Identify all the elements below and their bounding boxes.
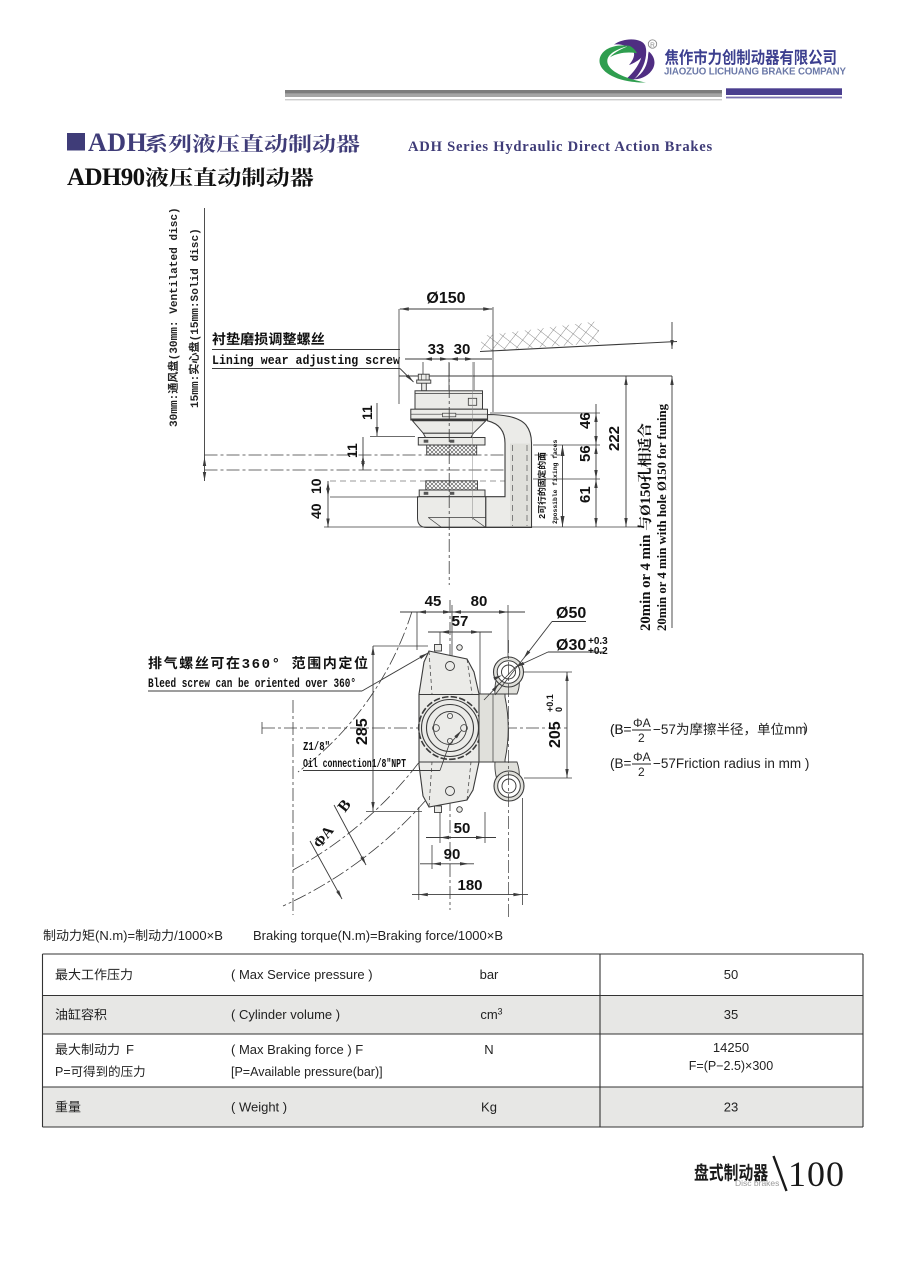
svg-text:100: 100 [788,1154,845,1194]
svg-text:56: 56 [577,445,594,462]
svg-text:222: 222 [606,426,623,451]
svg-text:(15mm:Solid disc): (15mm:Solid disc) [190,228,202,341]
svg-text:(N.m)=: (N.m)= [95,928,135,943]
svg-text:40: 40 [308,503,324,519]
svg-text:Ø50: Ø50 [556,605,586,622]
svg-text:(30mm: Ventilated disc): (30mm: Ventilated disc) [169,207,181,360]
svg-text:( Max Braking force ) F: ( Max Braking force ) F [231,1042,363,1057]
svg-text:2possible fixing faces: 2possible fixing faces [552,439,559,524]
svg-text:Lining wear adjusting screw: Lining wear adjusting screw [212,354,400,368]
svg-text:ADH90: ADH90 [67,164,145,191]
svg-text:mm: mm [784,722,807,737]
svg-text:F: F [126,1042,134,1057]
svg-text:(B=: (B= [610,722,632,737]
svg-text:−57: −57 [653,722,676,737]
svg-text:61: 61 [577,486,594,503]
svg-text:F=(P−2.5)×300: F=(P−2.5)×300 [689,1059,773,1073]
svg-text:ADH: ADH [88,128,147,157]
svg-text:Z1/8″: Z1/8″ [303,740,330,754]
svg-text:50: 50 [454,820,471,837]
svg-text:bar: bar [480,967,499,982]
svg-text:57: 57 [452,613,469,630]
svg-text:−57Friction radius in mm ): −57Friction radius in mm ) [653,756,809,771]
svg-text:180: 180 [457,877,482,894]
svg-text:P=: P= [55,1065,71,1079]
svg-text:JIAOZUO LICHUANG BRAKE COMPANY: JIAOZUO LICHUANG BRAKE COMPANY [664,67,847,78]
svg-text:( Max Service pressure ): ( Max Service pressure ) [231,967,373,982]
svg-text:46: 46 [577,412,594,429]
svg-text:80: 80 [471,593,488,610]
svg-text:30: 30 [454,341,471,358]
svg-text:ΦA: ΦA [633,716,651,730]
svg-text:2: 2 [538,514,548,519]
svg-text:90: 90 [444,846,461,863]
svg-text:(B=: (B= [610,756,632,771]
svg-text:35: 35 [724,1007,738,1022]
svg-text:Ø30: Ø30 [556,637,586,654]
svg-text:45: 45 [425,593,442,610]
svg-text:205: 205 [547,721,564,748]
svg-text:33: 33 [428,341,445,358]
svg-text:Ø150: Ø150 [426,290,465,307]
svg-text:10: 10 [308,478,324,494]
svg-text:2: 2 [638,731,645,745]
svg-text:23: 23 [724,1100,738,1115]
svg-text:Ø150: Ø150 [638,482,654,516]
svg-text:ΦA: ΦA [311,823,338,851]
svg-text:ADH Series Hydraulic Direct Ac: ADH Series Hydraulic Direct Action Brake… [408,139,713,155]
svg-text:[P=Available pressure(bar)]: [P=Available pressure(bar)] [231,1065,383,1079]
svg-text:Kg: Kg [481,1100,497,1115]
svg-text:30mm:: 30mm: [169,394,181,427]
svg-text:+0.2: +0.2 [588,646,608,657]
svg-text:R: R [650,42,655,49]
svg-text:ΦA: ΦA [633,750,651,764]
svg-text:14250: 14250 [713,1040,749,1055]
svg-text:15mm:: 15mm: [190,375,202,408]
svg-text:11: 11 [359,405,375,420]
svg-text:Bleed screw can be oriented ov: Bleed screw can be oriented over 360° [148,677,356,691]
svg-text:285: 285 [354,718,371,745]
svg-text:360°: 360° [242,657,282,673]
svg-text:11: 11 [344,443,360,458]
svg-text:( Cylinder volume ): ( Cylinder volume ) [231,1007,340,1022]
svg-text:( Weight ): ( Weight ) [231,1100,287,1115]
svg-text:/1000×B: /1000×B [174,928,223,943]
svg-text:50: 50 [724,967,738,982]
svg-text:3: 3 [498,1007,503,1017]
svg-text:N: N [484,1042,493,1057]
svg-text:20min or 4 min: 20min or 4 min [638,535,654,631]
svg-text:Disc brakes: Disc brakes [735,1178,779,1188]
svg-text:0: 0 [554,707,564,712]
svg-text:Oil connection1/8″NPT: Oil connection1/8″NPT [303,757,406,771]
svg-text:2: 2 [638,765,645,779]
svg-text:20min or 4 min with hole Ø150: 20min or 4 min with hole Ø150 for funing [655,403,669,631]
svg-text:Braking torque(N.m)=Braking fo: Braking torque(N.m)=Braking force/1000×B [253,928,503,943]
svg-text:cm: cm [480,1007,497,1022]
